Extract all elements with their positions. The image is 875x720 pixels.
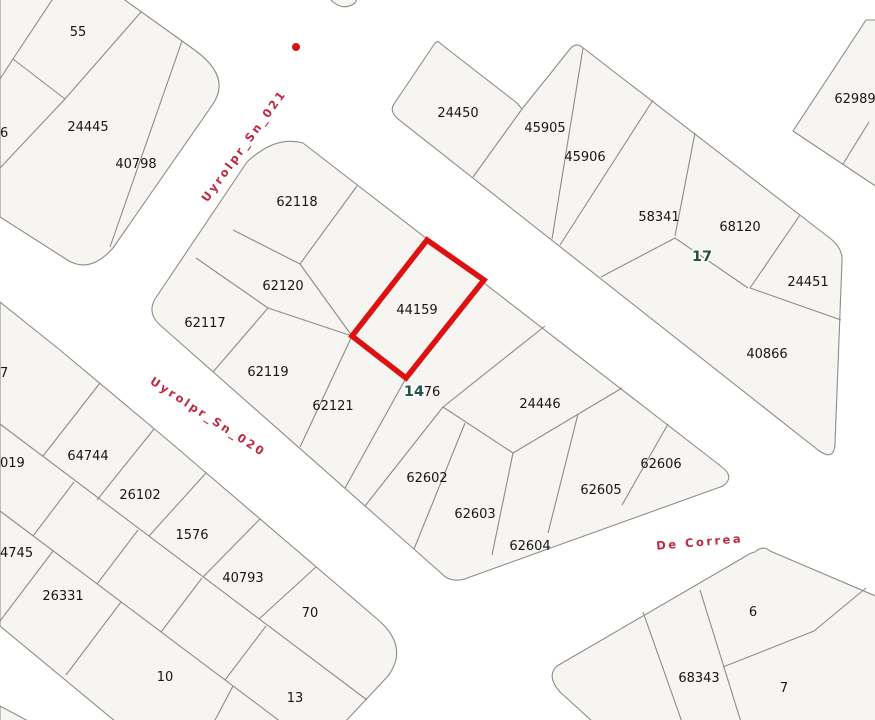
parcel-label-45905: 45905 (524, 121, 565, 136)
parcel-label-7: 7 (0, 366, 8, 381)
block-topcenter-tip (328, 0, 358, 7)
parcel-label-6: 6 (0, 126, 8, 141)
parcel-label-24445: 24445 (67, 120, 108, 135)
parcel-label-62606: 62606 (640, 457, 681, 472)
parcel-label-1576: 1576 (175, 528, 208, 543)
parcel-label-62989: 62989 (834, 92, 875, 107)
parcel-label-62605: 62605 (580, 483, 621, 498)
parcel-label-76: 76 (424, 385, 441, 400)
parcel-label-40793: 40793 (222, 571, 263, 586)
street-label-De-Correa: De Correa (656, 531, 744, 553)
parcel-label-64744: 64744 (67, 449, 108, 464)
parcel-label-62121: 62121 (312, 399, 353, 414)
parcel-label-58341: 58341 (638, 210, 679, 225)
parcel-label-24450: 24450 (437, 106, 478, 121)
parcel-label-70: 70 (302, 606, 319, 621)
parcel-label-62118: 62118 (276, 195, 317, 210)
block-bottomleft-sliver (0, 706, 30, 720)
parcel-label-24451: 24451 (787, 275, 828, 290)
parcel-label-62120: 62120 (262, 279, 303, 294)
map-viewport[interactable]: 5524445407986621186212062117621196212144… (0, 0, 875, 720)
parcel-label-68120: 68120 (719, 220, 760, 235)
parcel-label-26102: 26102 (119, 488, 160, 503)
parcel-label-10: 10 (157, 670, 174, 685)
parcel-label-7: 7 (780, 681, 788, 696)
parcel-label-45906: 45906 (564, 150, 605, 165)
parcel-label-44159: 44159 (396, 303, 437, 318)
parcel-label-4745: 4745 (0, 546, 33, 561)
parcel-label-68343: 68343 (678, 671, 719, 686)
parcel-label-62119: 62119 (247, 365, 288, 380)
parcel-label-6: 6 (749, 605, 757, 620)
cadastral-map[interactable]: 5524445407986621186212062117621196212144… (0, 0, 875, 720)
parcel-label-40866: 40866 (746, 347, 787, 362)
parcel-label-13: 13 (287, 691, 304, 706)
parcel-label-40798: 40798 (115, 157, 156, 172)
parcel-label-26331: 26331 (42, 589, 83, 604)
point-marker-dot (292, 43, 300, 51)
parcel-label-62603: 62603 (454, 507, 495, 522)
parcel-label-62117: 62117 (184, 316, 225, 331)
parcel-label-62604: 62604 (509, 539, 550, 554)
parcel-label-55: 55 (70, 25, 87, 40)
parcel-label-62602: 62602 (406, 471, 447, 486)
parcel-label-019: 019 (0, 456, 25, 471)
parcel-label-24446: 24446 (519, 397, 560, 412)
block-label-17: 17 (692, 249, 712, 265)
block-label-14: 14 (404, 384, 424, 400)
